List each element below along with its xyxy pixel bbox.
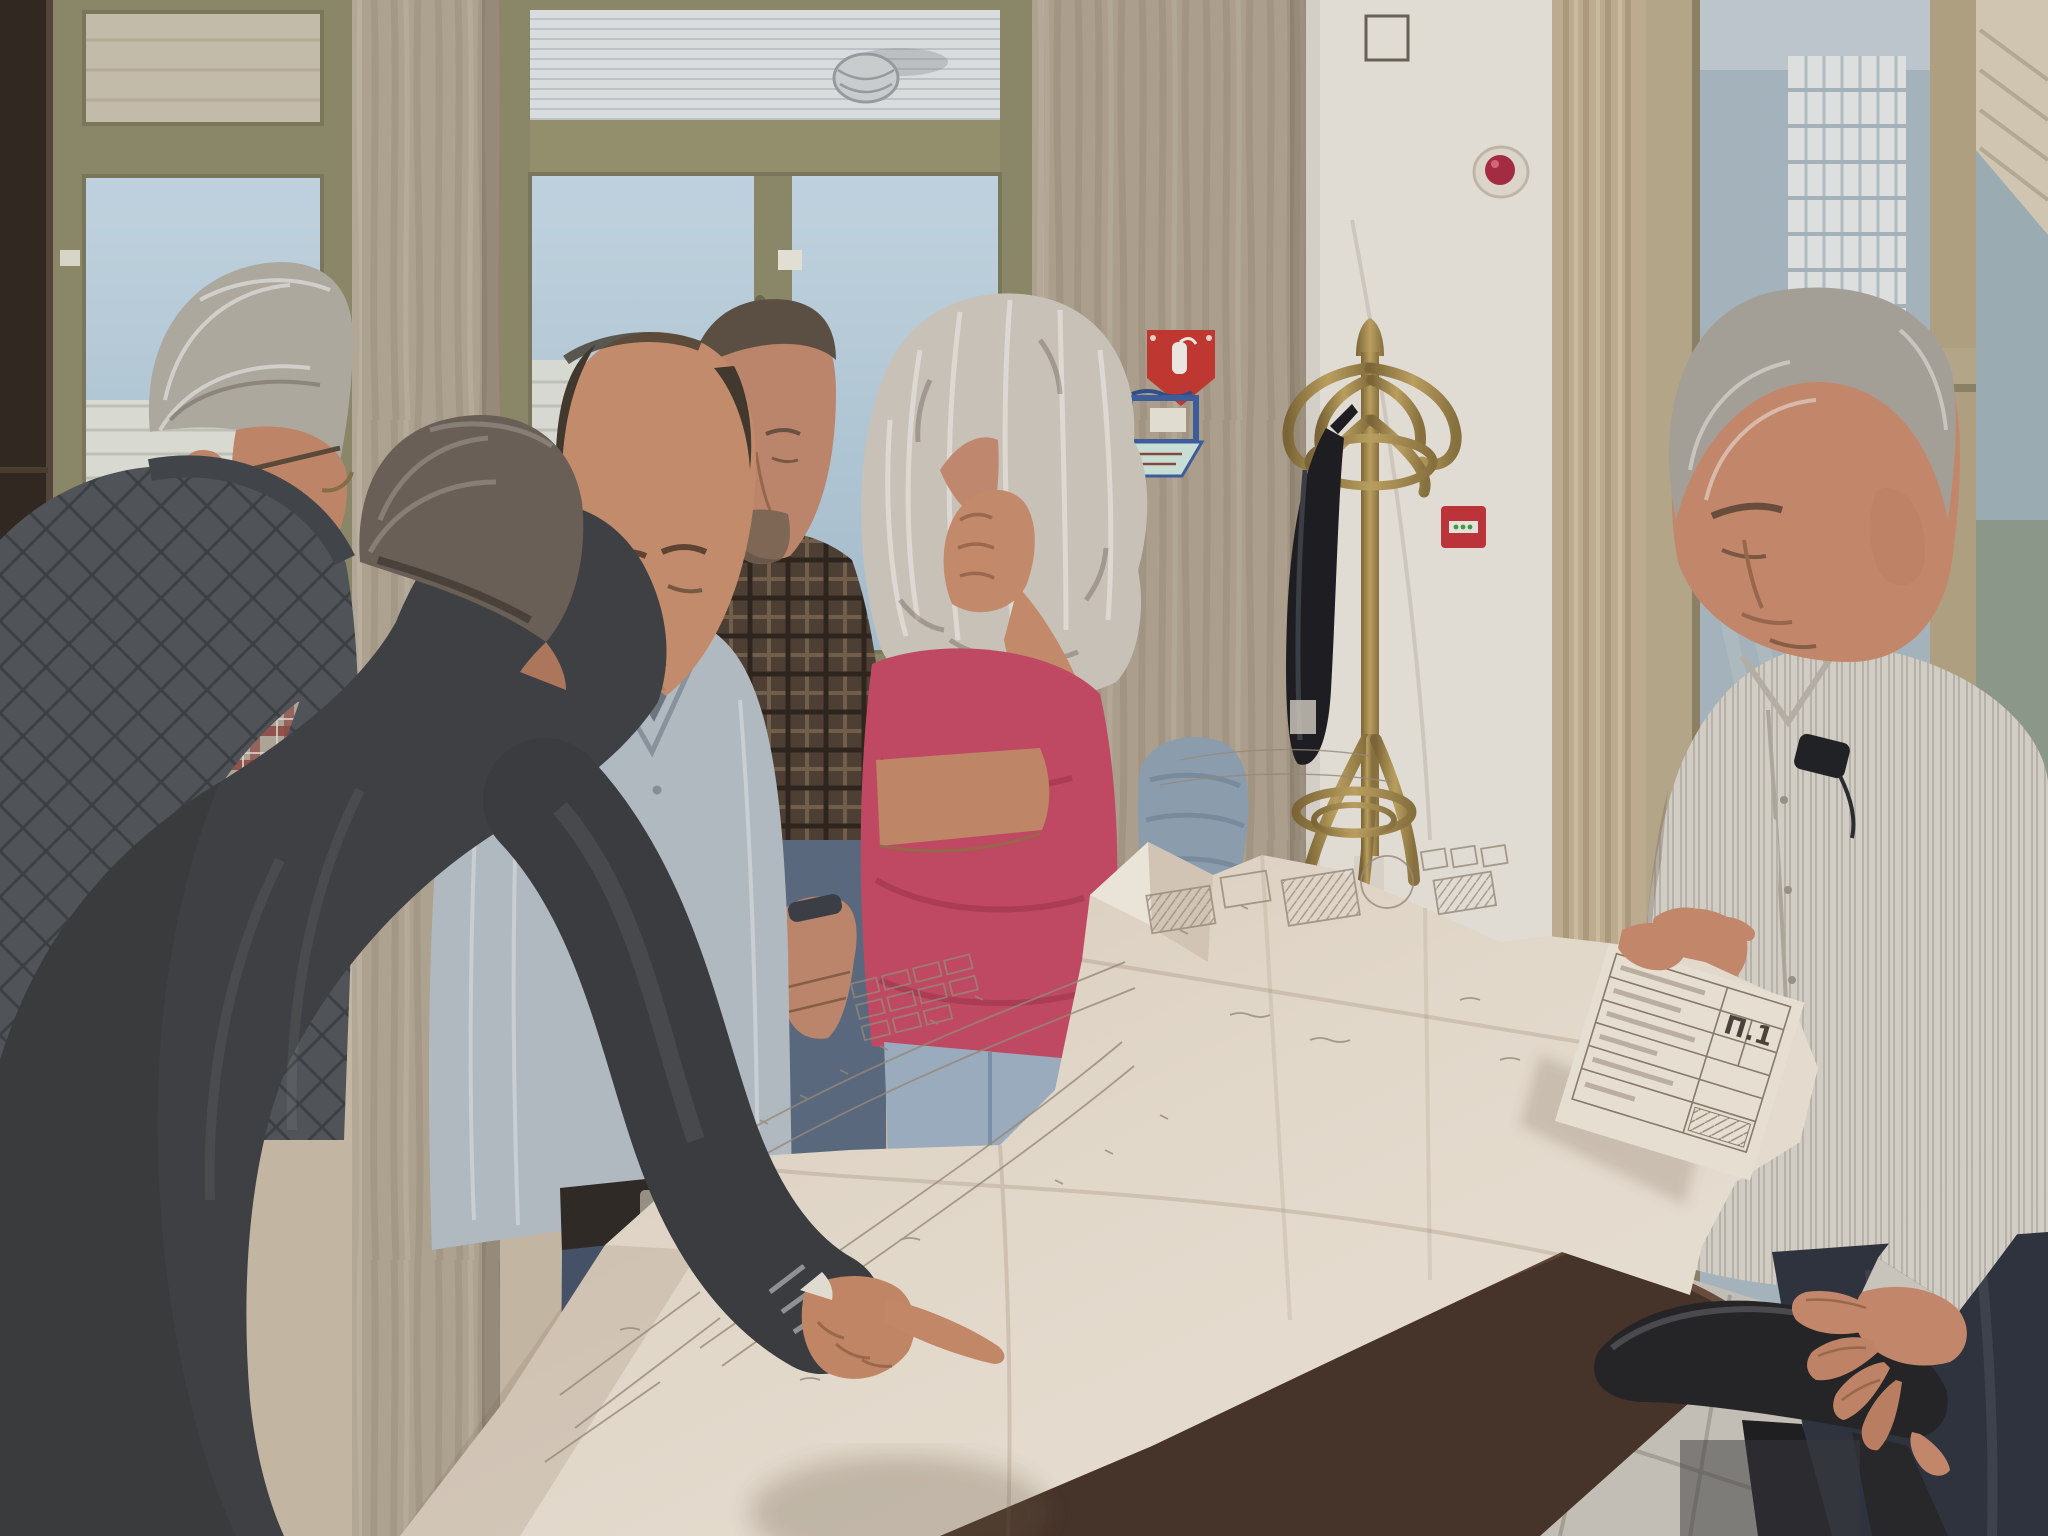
photo-scene: Π.1 [0, 0, 2048, 1536]
photo-tone [0, 0, 2048, 1536]
